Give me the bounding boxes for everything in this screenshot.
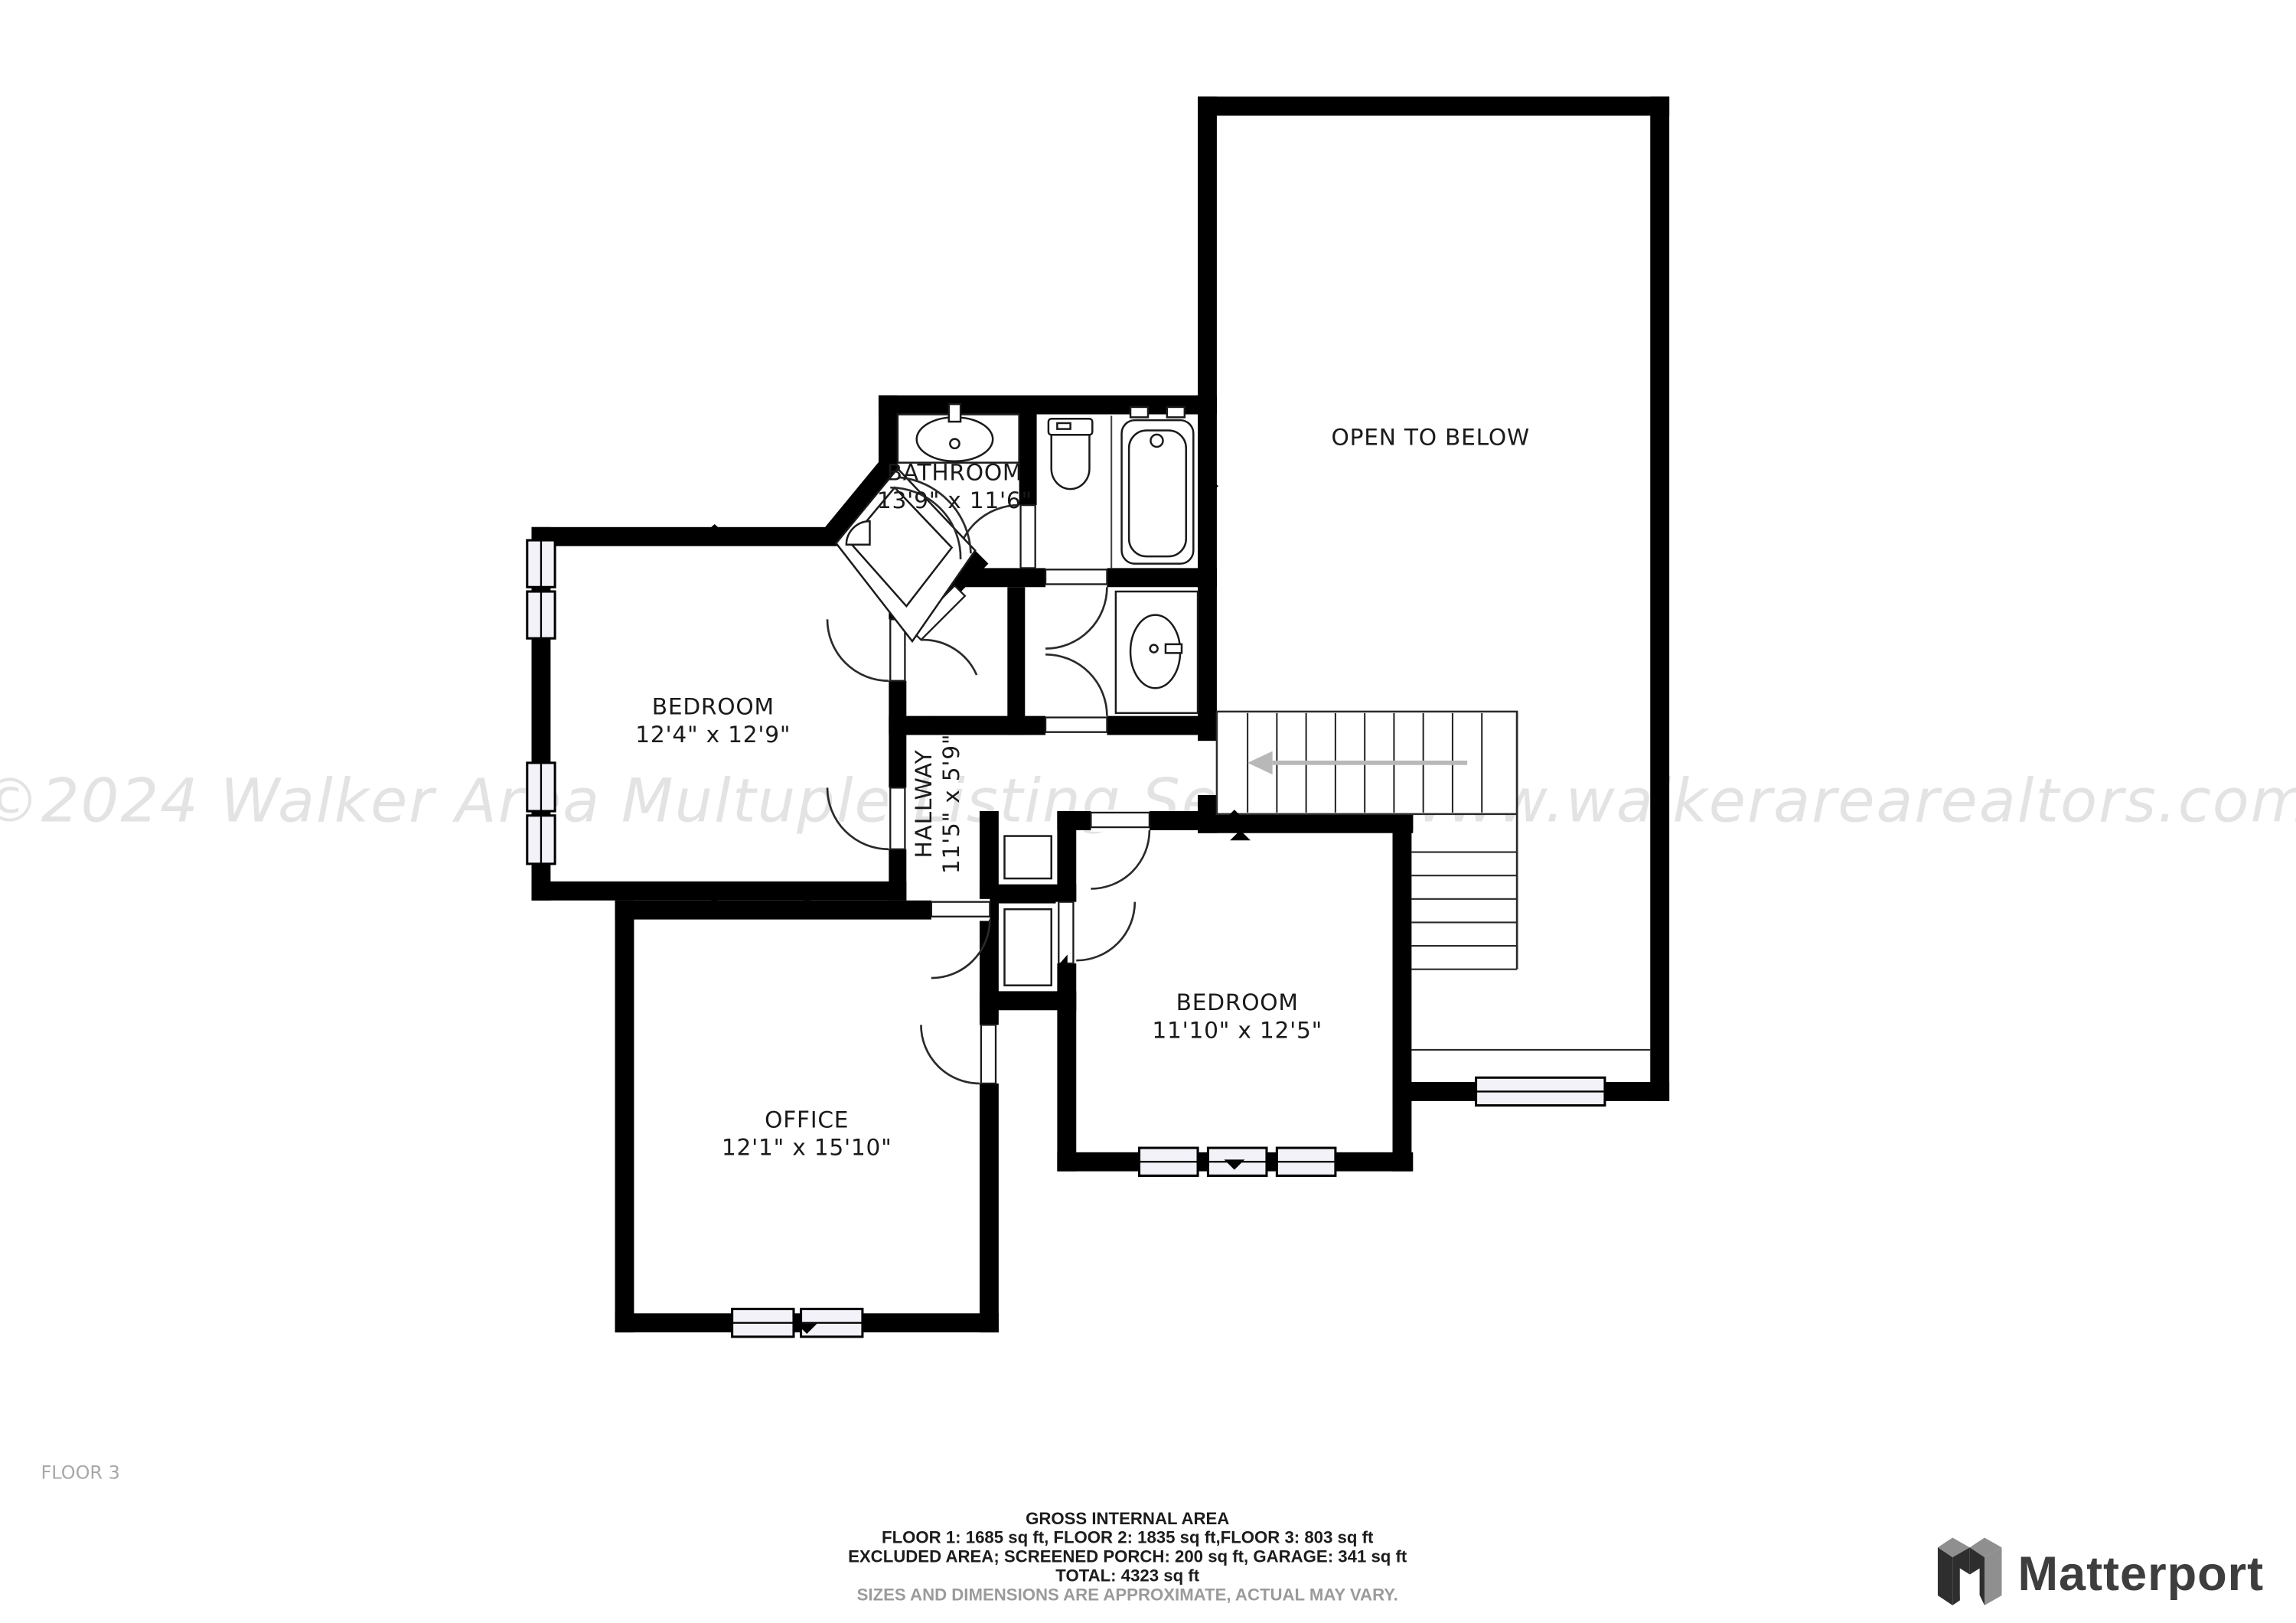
matterport-logo: Matterport	[1938, 1537, 2264, 1605]
room-label-bedroom-left: BEDROOM 12'4" x 12'9"	[635, 693, 791, 748]
room-label-office: OFFICE 12'1" x 15'10"	[722, 1106, 892, 1160]
floor-plan-canvas: ©2024 Walker Area Multuple Listing Servi…	[0, 0, 2296, 1623]
window	[801, 1309, 863, 1337]
sink-drain	[950, 439, 959, 448]
matterport-logo-icon	[1938, 1537, 2002, 1605]
second-bath-vanity	[1116, 592, 1198, 713]
footer-disclaimer: SIZES AND DIMENSIONS ARE APPROXIMATE, AC…	[857, 1585, 1398, 1604]
floor-plan-page: ©2024 Walker Area Multuple Listing Servi…	[0, 0, 2296, 1623]
footer-excluded-areas: EXCLUDED AREA; SCREENED PORCH: 200 sq ft…	[848, 1547, 1407, 1566]
window	[527, 763, 555, 811]
window	[1476, 1077, 1605, 1105]
room-label-open-to-below: OPEN TO BELOW	[1332, 424, 1530, 451]
closet-shelf	[1005, 836, 1052, 878]
room-label-bathroom: BATHROOM 13'9" x 11'6"	[877, 459, 1032, 513]
closet-shelf	[1005, 909, 1052, 985]
svg-text:12'4" x 12'9": 12'4" x 12'9"	[635, 721, 791, 748]
window	[527, 816, 555, 864]
svg-text:13'9" x 11'6": 13'9" x 11'6"	[877, 487, 1032, 513]
room-label-hallway: HALLWAY 11'5" x 5'9"	[910, 734, 964, 874]
svg-text:HALLWAY: HALLWAY	[910, 749, 937, 858]
window	[732, 1309, 794, 1337]
svg-text:12'1" x 15'10": 12'1" x 15'10"	[722, 1134, 892, 1161]
floor-number-label: FLOOR 3	[41, 1462, 120, 1484]
footer-title: GROSS INTERNAL AREA	[1026, 1509, 1229, 1528]
svg-text:BATHROOM: BATHROOM	[887, 459, 1023, 486]
footer-area-summary: GROSS INTERNAL AREA FLOOR 1: 1685 sq ft,…	[848, 1509, 1407, 1604]
window	[527, 592, 555, 638]
bathtub	[1122, 407, 1194, 564]
svg-text:OFFICE: OFFICE	[765, 1106, 849, 1133]
svg-text:BEDROOM: BEDROOM	[652, 693, 775, 720]
toilet	[1049, 419, 1092, 489]
sink-faucet	[949, 404, 960, 422]
svg-text:11'5" x 5'9": 11'5" x 5'9"	[938, 734, 964, 874]
footer-floor-areas: FLOOR 1: 1685 sq ft, FLOOR 2: 1835 sq ft…	[882, 1528, 1374, 1547]
matterport-logo-text: Matterport	[2017, 1547, 2264, 1601]
footer-total-area: TOTAL: 4323 sq ft	[1055, 1566, 1199, 1585]
window	[527, 540, 555, 587]
room-label-bedroom-right: BEDROOM 11'10" x 12'5"	[1152, 989, 1322, 1043]
window	[1277, 1148, 1336, 1175]
window	[1140, 1148, 1199, 1175]
svg-text:BEDROOM: BEDROOM	[1176, 989, 1299, 1015]
svg-text:11'10" x 12'5": 11'10" x 12'5"	[1152, 1017, 1322, 1044]
